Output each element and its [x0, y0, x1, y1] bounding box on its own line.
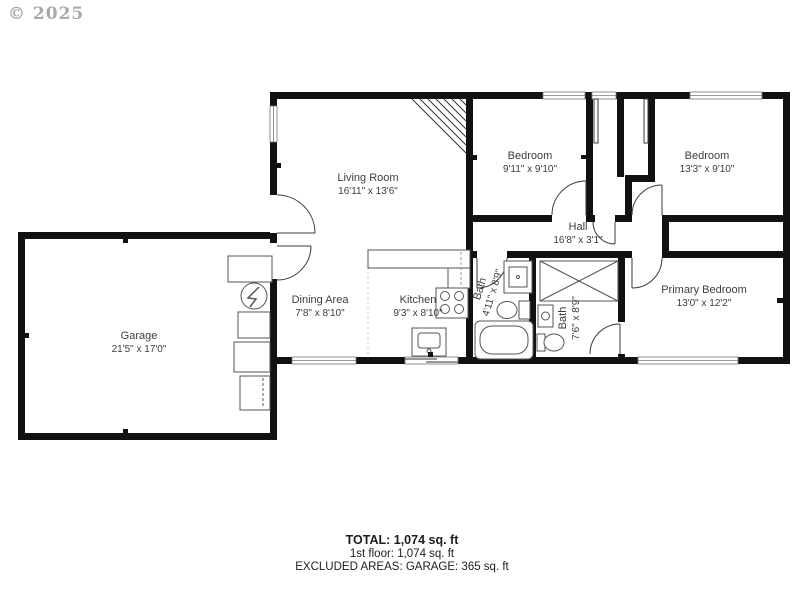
garage-wall-bottom — [18, 433, 277, 440]
window-dining-bottom — [292, 357, 356, 364]
sliding-door-kitchen-bottom — [405, 357, 458, 364]
window-living-left — [270, 106, 277, 142]
bedroom2-door-opening — [632, 215, 662, 222]
room-label-garage: Garage 21'5" x 17'0" — [112, 330, 167, 356]
wall-right — [783, 92, 790, 364]
window-bedroom2-top — [690, 92, 762, 99]
wall-bedroom1-right — [586, 92, 593, 222]
room-name: Primary Bedroom — [661, 284, 747, 298]
room-name: Bath — [557, 296, 571, 340]
garage-fixtures — [228, 256, 272, 410]
front-door — [277, 195, 315, 233]
primary-door-opening — [632, 251, 662, 258]
dryer — [234, 342, 270, 372]
room-label-bedroom2: Bedroom 13'3" x 9'10" — [680, 150, 735, 176]
room-name: Garage — [112, 330, 167, 344]
room-dims: 13'3" x 9'10" — [680, 164, 735, 177]
first-floor-area: 1st floor: 1,074 sq. ft — [295, 548, 508, 562]
bath2-door-opening — [618, 322, 625, 354]
room-dims: 9'11" x 9'10" — [503, 164, 557, 177]
kitchen-sink — [412, 328, 446, 356]
floorplan-page: © 2025 — [0, 0, 800, 600]
bath1-toilet — [497, 301, 530, 319]
room-name: Hall — [553, 221, 602, 235]
primary-bedroom-door — [632, 258, 662, 288]
window-primary-bottom — [638, 357, 738, 364]
bath1-vanity — [504, 261, 532, 293]
window-closet-top — [592, 92, 616, 99]
kitchen-counter-top — [368, 250, 470, 268]
stairs — [412, 99, 466, 153]
room-name: Bedroom — [680, 150, 735, 164]
wall-bedroom1-left — [466, 92, 473, 222]
wall-hall-bottom — [466, 251, 783, 258]
garage-wall-top — [18, 232, 277, 239]
room-label-living-room: Living Room 16'11" x 13'6" — [337, 172, 398, 198]
room-dims: 7'6" x 8'9" — [571, 296, 584, 340]
room-dims: 13'0" x 12'2" — [661, 298, 747, 311]
bath2-sink — [538, 305, 553, 327]
room-dims: 7'8" x 8'10" — [292, 308, 349, 321]
bath2-door — [590, 324, 620, 354]
window-bedroom1-top — [543, 92, 585, 99]
room-name: Dining Area — [292, 294, 349, 308]
electrical-panel-icon — [241, 283, 267, 309]
garage-wall-left — [18, 232, 25, 440]
closet-leaf-left — [594, 99, 598, 143]
area-summary: TOTAL: 1,074 sq. ft 1st floor: 1,074 sq.… — [295, 533, 508, 575]
room-label-dining-area: Dining Area 7'8" x 8'10" — [292, 294, 349, 320]
water-heater — [240, 376, 270, 410]
room-dims: 9'3" x 8'10" — [393, 308, 442, 321]
kitchen-counter-right — [448, 268, 470, 288]
wall-notch-v — [625, 175, 632, 222]
room-label-kitchen: Kitchen 9'3" x 8'10" — [393, 294, 442, 320]
total-area: TOTAL: 1,074 sq. ft — [295, 533, 508, 548]
wall-hall-top — [466, 215, 783, 222]
wall-closet-mid — [617, 92, 624, 177]
bedroom2-door — [632, 185, 662, 215]
garage-bench — [228, 256, 272, 282]
excluded-areas: EXCLUDED AREAS: GARAGE: 365 sq. ft — [295, 561, 508, 575]
front-door-opening — [270, 195, 277, 233]
room-name: Living Room — [337, 172, 398, 186]
garage-entry-door — [277, 246, 311, 280]
bath1-tub — [475, 321, 533, 359]
room-label-bath2: Bath 7'6" x 8'9" — [557, 296, 583, 340]
room-label-primary-bedroom: Primary Bedroom 13'0" x 12'2" — [661, 284, 747, 310]
closet-leaf-right — [644, 99, 648, 143]
room-label-bedroom1: Bedroom 9'11" x 9'10" — [503, 150, 557, 176]
washer — [238, 312, 270, 338]
room-name: Kitchen — [393, 294, 442, 308]
bath1-door-opening — [477, 251, 507, 258]
room-label-hall: Hall 16'8" x 3'1" — [553, 221, 602, 247]
room-dims: 16'8" x 3'1" — [553, 235, 602, 248]
wall-bedroom2-left — [648, 92, 655, 182]
bedroom1-door — [552, 181, 586, 215]
wall-hall-right-jamb — [662, 215, 669, 258]
room-dims: 16'11" x 13'6" — [337, 186, 398, 199]
room-dims: 21'5" x 17'0" — [112, 344, 167, 357]
room-name: Bedroom — [503, 150, 557, 164]
